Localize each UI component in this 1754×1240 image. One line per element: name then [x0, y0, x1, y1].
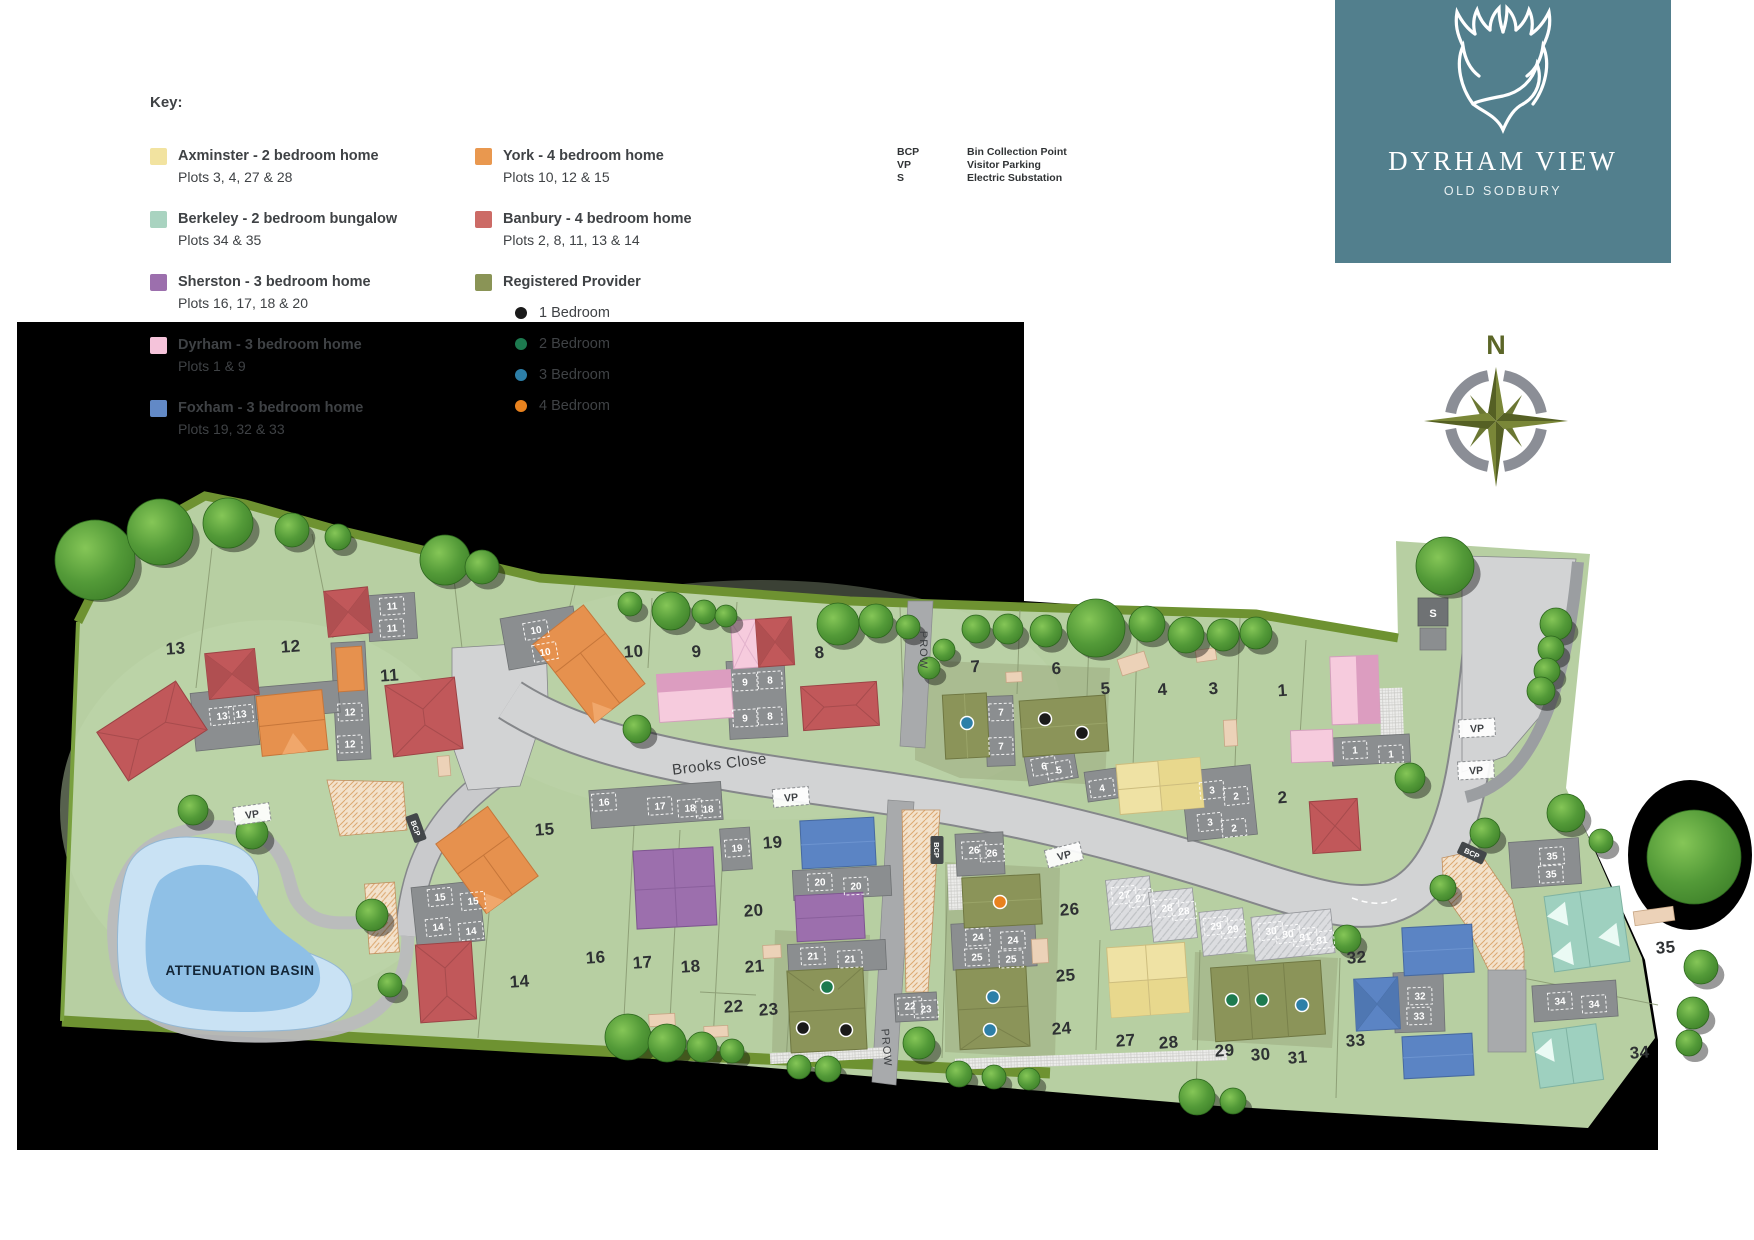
- parking-bay-number: 7: [998, 741, 1004, 752]
- plot-number: 22: [723, 996, 744, 1016]
- bedroom-dot-3-bedroom: [961, 717, 974, 730]
- legend-swatch: [150, 274, 167, 291]
- electric-substation: S: [1418, 598, 1448, 650]
- parking-bay-number: 14: [432, 922, 445, 934]
- plot-number: 34: [1629, 1042, 1650, 1062]
- bedroom-dot-1-bedroom: [1039, 713, 1052, 726]
- site-plan-page: { "legend": { "title": "Key:", "house_ty…: [0, 0, 1754, 1240]
- legend-entry: Foxham - 3 bedroom homePlots 19, 32 & 33: [150, 398, 460, 440]
- legend-entry: Dyrham - 3 bedroom homePlots 1 & 9: [150, 335, 460, 377]
- parking-bay-number: 12: [344, 707, 356, 719]
- bedroom-dot-icon: [515, 307, 527, 319]
- key-title: Key:: [150, 94, 183, 111]
- tree-icon: [1220, 1088, 1246, 1114]
- plot-number: 3: [1208, 679, 1219, 699]
- tree-icon: [1547, 794, 1585, 832]
- plot-number: 35: [1655, 937, 1676, 957]
- plot-number: 15: [534, 819, 555, 839]
- rp-house-plots-24-25: [956, 966, 1030, 1050]
- parking-bay-number: 19: [731, 843, 743, 855]
- visitor-parking-marker: VP: [772, 786, 809, 807]
- parking-bay-number: 1: [1388, 749, 1395, 760]
- tree-icon: [1527, 677, 1555, 705]
- parking-bay-number: 9: [742, 677, 749, 688]
- plot-number: 9: [691, 642, 702, 662]
- tree-icon: [859, 604, 893, 638]
- tree-icon: [1395, 763, 1425, 793]
- plot-number: 27: [1115, 1030, 1136, 1050]
- garage-plot-12: [335, 646, 364, 692]
- plot-number: 17: [632, 952, 653, 972]
- tree-icon: [1677, 997, 1709, 1029]
- abbreviation-row: SElectric Substation: [897, 172, 1067, 185]
- parking-bay-number: 26: [986, 848, 998, 860]
- bedroom-dot-icon: [515, 369, 527, 381]
- tree-icon: [933, 639, 955, 661]
- parking-bay-number: 15: [434, 892, 447, 904]
- house-plot-20: [795, 892, 865, 941]
- bedroom-dot-1-bedroom: [1076, 727, 1089, 740]
- abbreviation-meaning: Electric Substation: [967, 172, 1062, 185]
- tree-icon: [715, 605, 737, 627]
- house-plot-35: [1544, 886, 1630, 972]
- parking-bay-number: 15: [467, 896, 480, 908]
- house-plots-16-17-18: [633, 847, 717, 929]
- parking-bay-number: 29: [1227, 924, 1240, 936]
- tree-icon: [1540, 608, 1572, 640]
- plot-number: 23: [758, 999, 779, 1019]
- legend-entry-label: Berkeley - 2 bedroom bungalow: [178, 209, 397, 230]
- tree-icon: [356, 899, 388, 931]
- tree-icon: [1470, 818, 1500, 848]
- tree-icon: [1179, 1079, 1215, 1115]
- parking-bay-number: 25: [971, 952, 983, 964]
- legend-swatch: [150, 211, 167, 228]
- abbreviation-row: BCPBin Collection Point: [897, 146, 1067, 159]
- plot-number: 6: [1051, 659, 1062, 679]
- logo-title: DYRHAM VIEW: [1388, 146, 1618, 177]
- tree-icon: [993, 614, 1023, 644]
- prow-label: PROW: [917, 631, 929, 669]
- tree-icon: [605, 1014, 651, 1060]
- plot-number: 1: [1277, 681, 1288, 701]
- legend-entry-label: York - 4 bedroom home: [503, 146, 664, 167]
- tree-icon: [1647, 810, 1741, 904]
- legend-entry-label: Dyrham - 3 bedroom home: [178, 335, 362, 356]
- legend-entry-label: Foxham - 3 bedroom home: [178, 398, 363, 419]
- bedroom-legend-label: 3 Bedroom: [539, 367, 610, 383]
- bedroom-legend-row: 1 Bedroom: [515, 297, 641, 328]
- house-plots-27-28: [1107, 942, 1190, 1017]
- garage-plot-32: [1354, 977, 1401, 1031]
- parking-bay-number: 20: [850, 881, 862, 893]
- plot-number: 12: [280, 636, 301, 656]
- bedroom-legend-label: 2 Bedroom: [539, 336, 610, 352]
- legend-entry: Banbury - 4 bedroom homePlots 2, 8, 11, …: [475, 209, 805, 251]
- annex-plot-1: [1290, 729, 1333, 762]
- tree-icon: [903, 1027, 935, 1059]
- tree-icon: [815, 1056, 841, 1082]
- visitor-parking-marker: VP: [1458, 760, 1495, 780]
- tree-icon: [962, 615, 990, 643]
- parking-bay-number: 28: [1178, 906, 1191, 918]
- plot-number: 7: [970, 657, 981, 677]
- parking-bay-number: 21: [844, 954, 856, 966]
- bedroom-dot-icon: [515, 400, 527, 412]
- parking-bay-number: 13: [235, 709, 248, 721]
- legend-entry: Axminster - 2 bedroom homePlots 3, 4, 27…: [150, 146, 460, 188]
- parking-bay-number: 35: [1545, 869, 1557, 881]
- house-plot-11: [385, 677, 463, 757]
- house-plot-1: [1330, 655, 1380, 725]
- tree-icon: [325, 524, 351, 550]
- garage-plot-11: [324, 587, 373, 637]
- abbreviation-key: S: [897, 172, 967, 185]
- parking-bay-number: 9: [742, 713, 749, 724]
- parking-bay-number: 34: [1554, 996, 1566, 1008]
- bedroom-dot-2-bedroom: [821, 981, 834, 994]
- house-plot-14: [415, 941, 476, 1023]
- legend-entry-registered-provider: Registered Provider1 Bedroom2 Bedroom3 B…: [475, 272, 805, 421]
- legend-entry-label: Axminster - 2 bedroom home: [178, 146, 379, 167]
- legend-entry-plots: Plots 10, 12 & 15: [503, 167, 664, 188]
- parking-bay-number: 1: [1352, 745, 1359, 756]
- tree-icon: [465, 550, 499, 584]
- attenuation-basin-label: ATTENUATION BASIN: [166, 963, 315, 978]
- parking-bay-number: 20: [814, 877, 826, 889]
- parking-bay-number: 35: [1546, 851, 1558, 863]
- abbreviation-meaning: Bin Collection Point: [967, 146, 1067, 159]
- house-plot-32: [1402, 924, 1474, 976]
- tree-icon: [692, 600, 716, 624]
- substation-label: S: [1429, 608, 1436, 620]
- legend-swatch: [475, 211, 492, 228]
- house-plot-34: [1532, 1024, 1603, 1088]
- parking-bay-number: 24: [972, 932, 984, 944]
- parking-bay-number: 24: [1007, 935, 1019, 947]
- bedroom-legend-label: 1 Bedroom: [539, 305, 610, 321]
- abbreviations-block: BCPBin Collection PointVPVisitor Parking…: [897, 146, 1067, 185]
- compass-star: [1424, 367, 1568, 487]
- stag-antlers-icon: [1413, 0, 1593, 140]
- legend-swatch: [475, 274, 492, 291]
- plot-number: 18: [680, 956, 701, 976]
- legend-entry-plots: Plots 19, 32 & 33: [178, 419, 363, 440]
- compass-north-label: N: [1486, 330, 1506, 360]
- plot-number: 13: [165, 638, 186, 658]
- abbreviation-key: VP: [897, 159, 967, 172]
- parking-bay-number: 14: [465, 926, 478, 938]
- tree-icon: [1430, 875, 1456, 901]
- house-plot-9: [656, 669, 733, 722]
- bedroom-legend-row: 4 Bedroom: [515, 390, 641, 421]
- tree-icon: [1416, 537, 1474, 595]
- plot-number: 20: [743, 900, 764, 920]
- tree-icon: [652, 592, 690, 630]
- house-plots-3-4: [1116, 757, 1204, 814]
- tree-icon: [1676, 1030, 1702, 1056]
- plot-number: 26: [1059, 899, 1080, 919]
- logo-subtitle: OLD SODBURY: [1444, 184, 1562, 198]
- development-logo: DYRHAM VIEW OLD SODBURY: [1335, 0, 1671, 263]
- bedroom-dot-4-bedroom: [994, 896, 1007, 909]
- parking-bay-number: 16: [598, 797, 610, 809]
- visitor-parking-label: VP: [784, 791, 799, 804]
- bedroom-legend-list: 1 Bedroom2 Bedroom3 Bedroom4 Bedroom: [515, 297, 641, 421]
- plot-number: 16: [585, 947, 606, 967]
- legend-entry: York - 4 bedroom homePlots 10, 12 & 15: [475, 146, 805, 188]
- tree-icon: [55, 520, 135, 600]
- parking-bay-number: 32: [1414, 991, 1426, 1002]
- legend-swatch: [475, 148, 492, 165]
- plot-number: 30: [1250, 1044, 1271, 1064]
- plot-number: 29: [1214, 1040, 1235, 1060]
- abbreviation-row: VPVisitor Parking: [897, 159, 1067, 172]
- bedroom-dot-3-bedroom: [987, 991, 1000, 1004]
- tree-icon: [623, 715, 651, 743]
- visitor-parking-label: VP: [1469, 765, 1484, 778]
- tree-icon: [687, 1032, 717, 1062]
- parking-bay-number: 18: [702, 804, 714, 816]
- garage-plot-8: [755, 617, 794, 667]
- plot-number: 21: [744, 956, 765, 976]
- tree-icon: [275, 513, 309, 547]
- tree-icon: [1589, 829, 1613, 853]
- plot-number: 5: [1100, 679, 1111, 699]
- bedroom-dot-1-bedroom: [840, 1024, 853, 1037]
- rp-house-plots-5-6: [1019, 695, 1109, 757]
- compass-rose: N: [1418, 314, 1578, 504]
- legend-entry-label: Sherston - 3 bedroom home: [178, 272, 371, 293]
- legend-entry-label: Banbury - 4 bedroom home: [503, 209, 692, 230]
- tree-icon: [1129, 606, 1165, 642]
- plot-number: 31: [1287, 1047, 1308, 1067]
- tree-icon: [378, 973, 402, 997]
- drive-herringbone-west: [327, 780, 407, 836]
- legend-entry-label: Registered Provider: [503, 272, 641, 293]
- abbreviation-key: BCP: [897, 146, 967, 159]
- tree-icon: [1207, 619, 1239, 651]
- legend-entry-plots: Plots 1 & 9: [178, 356, 362, 377]
- bedroom-dot-2-bedroom: [1226, 994, 1239, 1007]
- garage-plot-13: [205, 649, 260, 700]
- tree-icon: [1684, 950, 1718, 984]
- legend-entry-plots: Plots 34 & 35: [178, 230, 397, 251]
- plot-number: 11: [379, 665, 399, 685]
- abbreviation-meaning: Visitor Parking: [967, 159, 1041, 172]
- plot-number: 19: [762, 832, 783, 852]
- tree-icon: [618, 592, 642, 616]
- tree-icon: [896, 615, 920, 639]
- plot-number: 25: [1055, 965, 1076, 985]
- legend-swatch: [150, 148, 167, 165]
- tree-icon: [1538, 636, 1564, 662]
- house-plot-8: [801, 681, 880, 730]
- parking-bay-number: 34: [1588, 999, 1600, 1011]
- tree-icon: [720, 1039, 744, 1063]
- legend-entry-plots: Plots 3, 4, 27 & 28: [178, 167, 379, 188]
- house-plot-12: [256, 690, 328, 757]
- legend-entry-plots: Plots 2, 8, 11, 13 & 14: [503, 230, 692, 251]
- bedroom-dot-2-bedroom: [1256, 994, 1269, 1007]
- plot-number: 32: [1346, 947, 1367, 967]
- tree-icon: [1018, 1068, 1040, 1090]
- parking-bay-number: 27: [1135, 893, 1148, 905]
- parking-bay-number: 21: [807, 951, 819, 963]
- legend-entry: Sherston - 3 bedroom homePlots 16, 17, 1…: [150, 272, 460, 314]
- house-plot-2: [1309, 798, 1361, 853]
- visitor-parking-label: VP: [1470, 723, 1485, 736]
- parking-bay-number: 11: [386, 623, 398, 635]
- parking-bay-number: 7: [998, 707, 1004, 718]
- parking-bay-number: 8: [767, 675, 774, 686]
- bin-collection-point-marker: BCP: [931, 836, 944, 864]
- plot-number: 33: [1345, 1030, 1366, 1050]
- bedroom-dot-3-bedroom: [1296, 999, 1309, 1012]
- legend-swatch: [150, 400, 167, 417]
- house-plot-33: [1402, 1033, 1474, 1079]
- parking-bay-number: 26: [968, 845, 980, 857]
- plot-number: 4: [1157, 680, 1168, 700]
- visitor-parking-marker: VP: [1459, 718, 1496, 738]
- plot-number: 14: [509, 971, 530, 991]
- legend-column-2: York - 4 bedroom homePlots 10, 12 & 15Ba…: [475, 146, 805, 442]
- tree-icon: [787, 1055, 811, 1079]
- visitor-parking-label: VP: [244, 808, 260, 822]
- tree-icon: [1030, 615, 1062, 647]
- plot-number: 28: [1158, 1032, 1179, 1052]
- legend-entry-plots: Plots 16, 17, 18 & 20: [178, 293, 371, 314]
- parking-bay-number: 33: [1413, 1011, 1425, 1022]
- tree-icon: [178, 795, 208, 825]
- parking-bay-number: 31: [1316, 935, 1329, 947]
- parking-bay-number: 8: [767, 711, 774, 722]
- tree-icon: [982, 1065, 1006, 1089]
- tree-icon: [946, 1061, 972, 1087]
- parking-bay-number: 17: [654, 801, 666, 813]
- tree-icon: [420, 535, 470, 585]
- tree-icon: [1067, 599, 1125, 657]
- parking-bay-number: 18: [684, 803, 696, 815]
- plot-number: 10: [623, 641, 644, 661]
- bedroom-dot-3-bedroom: [984, 1024, 997, 1037]
- tree-icon: [127, 499, 193, 565]
- plot-number: 8: [814, 643, 825, 663]
- plot-number: 2: [1277, 788, 1288, 808]
- bedroom-legend-row: 2 Bedroom: [515, 328, 641, 359]
- bin-collection-point-label: BCP: [932, 842, 941, 858]
- legend-swatch: [150, 337, 167, 354]
- tree-icon: [203, 498, 253, 548]
- parking-bay-number: 25: [1005, 954, 1017, 966]
- tree-icon: [648, 1024, 686, 1062]
- bedroom-dot-1-bedroom: [797, 1022, 810, 1035]
- plot-number: 24: [1051, 1018, 1072, 1038]
- parking-bay-number: 12: [344, 739, 356, 751]
- legend-entry: Berkeley - 2 bedroom bungalowPlots 34 & …: [150, 209, 460, 251]
- parking-bay-number: 11: [386, 601, 398, 613]
- parking-bay-number: 13: [216, 711, 229, 723]
- bedroom-dot-icon: [515, 338, 527, 350]
- tree-icon: [817, 603, 859, 645]
- bedroom-legend-label: 4 Bedroom: [539, 398, 610, 414]
- legend-column-1: Axminster - 2 bedroom homePlots 3, 4, 27…: [150, 146, 460, 461]
- tree-icon: [1168, 617, 1204, 653]
- tree-icon: [1240, 617, 1272, 649]
- bedroom-legend-row: 3 Bedroom: [515, 359, 641, 390]
- house-plot-19: [800, 817, 876, 869]
- parking-bay-number: 23: [920, 1004, 932, 1016]
